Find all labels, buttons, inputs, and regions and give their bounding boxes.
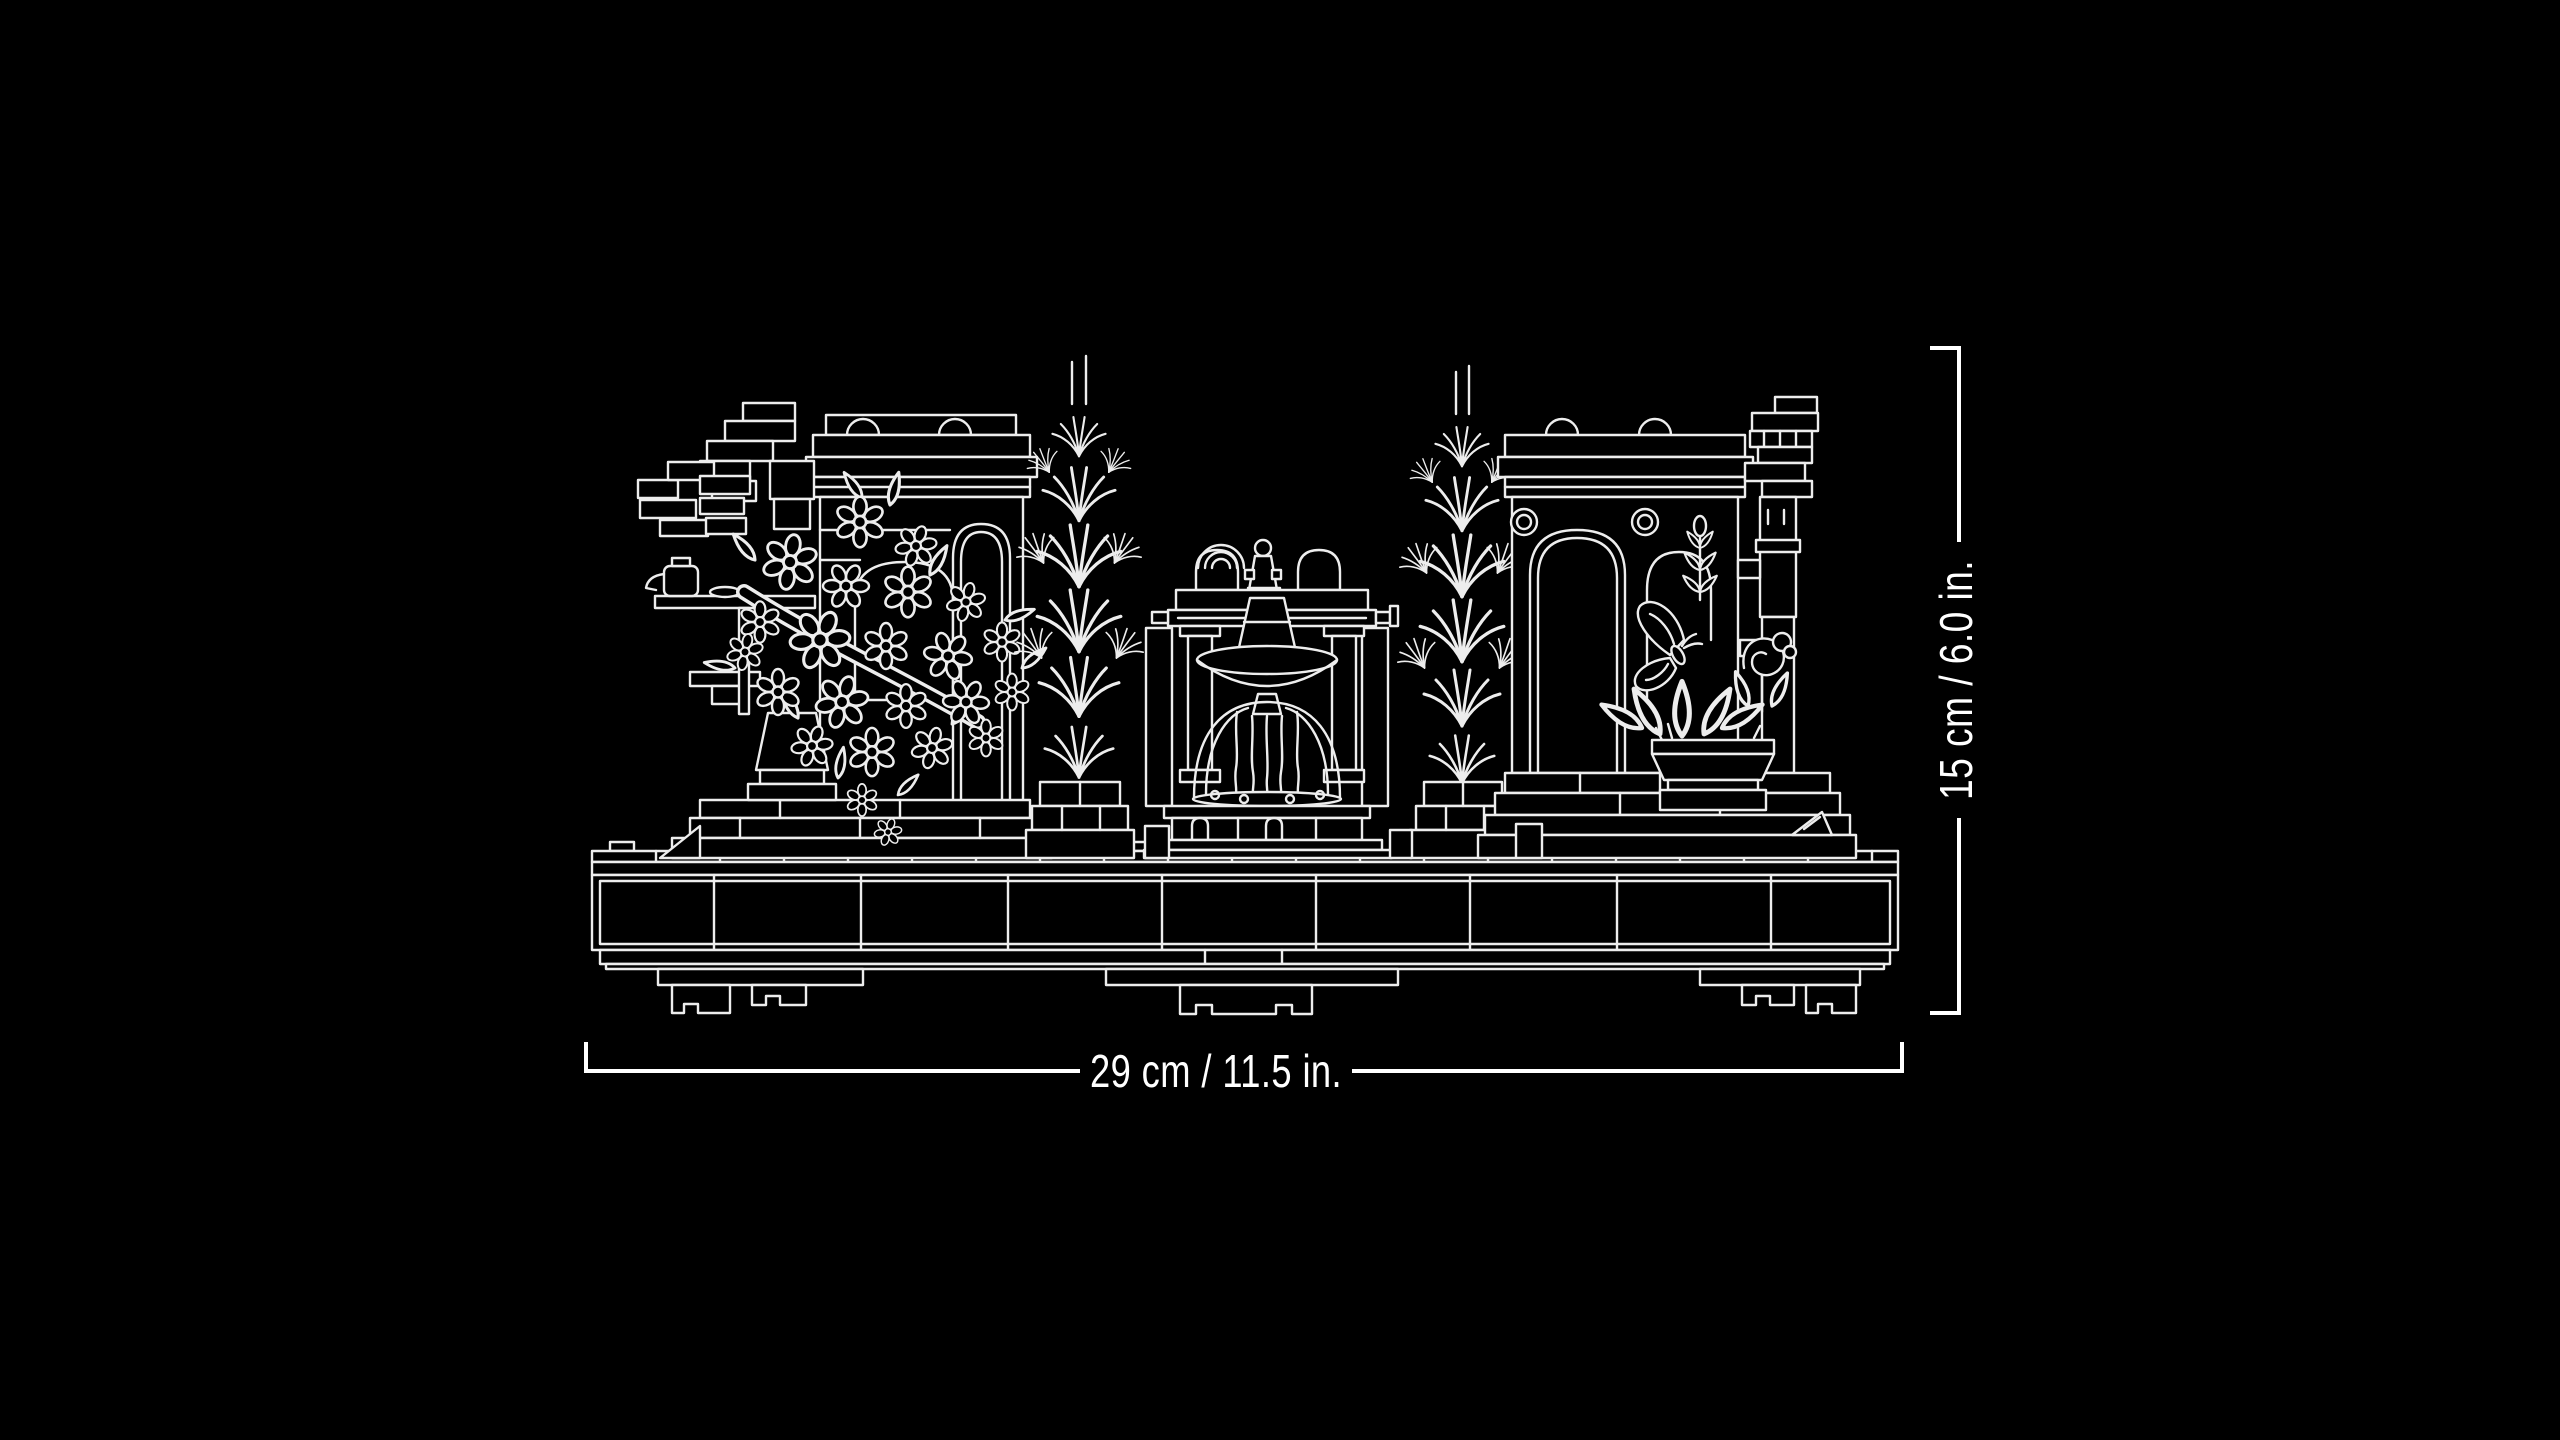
- teapot: [646, 558, 740, 597]
- fountain: [1144, 540, 1398, 858]
- base-plate: [592, 842, 1898, 1014]
- dimension-width: 29 cm / 11.5 in.: [586, 1042, 1902, 1097]
- ledge-beam: [655, 596, 815, 608]
- lego-set-outline-illustration: 29 cm / 11.5 in. 15 cm / 6.0 in.: [0, 0, 2560, 1440]
- product-dimension-screen: 29 cm / 11.5 in. 15 cm / 6.0 in.: [0, 0, 2560, 1440]
- base-feet: [658, 969, 1860, 1014]
- height-dimension-label: 15 cm / 6.0 in.: [1930, 560, 1982, 800]
- width-dimension-label: 29 cm / 11.5 in.: [1090, 1045, 1342, 1097]
- cypress-tree-left: [1009, 356, 1150, 858]
- dimension-height: 15 cm / 6.0 in.: [1930, 348, 1982, 1013]
- water-streams: [1193, 702, 1341, 806]
- base-body: [592, 875, 1898, 950]
- base-lower-plate: [600, 950, 1890, 964]
- base-top-plate: [592, 862, 1898, 875]
